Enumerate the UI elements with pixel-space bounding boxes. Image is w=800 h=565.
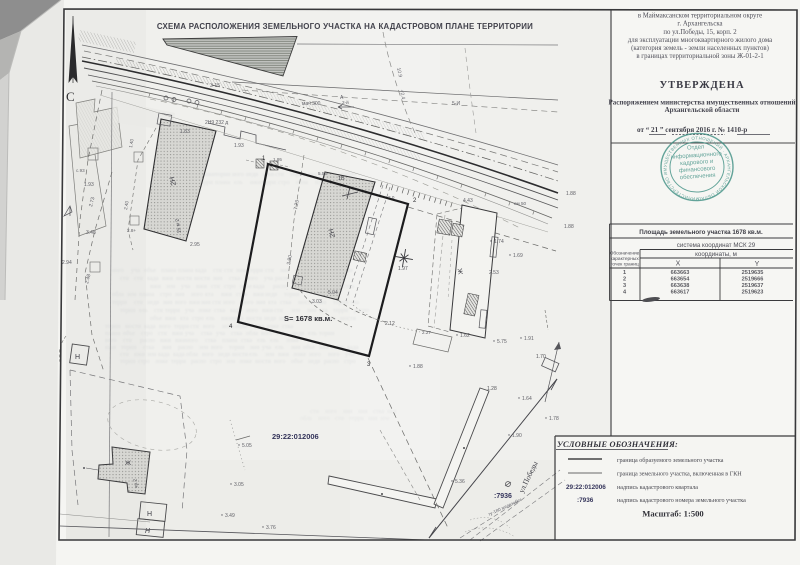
svg-text:ель: ель: [270, 337, 279, 344]
svg-text:распо: распо: [273, 283, 288, 290]
svg-text:1.74: 1.74: [494, 239, 504, 245]
svg-text:ния: ния: [291, 344, 301, 351]
svg-text:в границах территориальной зон: в границах территориальной зоны Ж-01-2-1: [636, 53, 763, 60]
svg-text:Масштаб: 1:500: Масштаб: 1:500: [642, 509, 703, 519]
svg-text:ния: ния: [236, 267, 246, 274]
svg-text:плана: плана: [105, 330, 120, 337]
svg-text:5.04: 5.04: [328, 290, 338, 296]
svg-text:С: С: [66, 89, 75, 104]
svg-text:сти: сти: [134, 275, 143, 282]
svg-text:терри: терри: [333, 307, 349, 314]
svg-text:ижи: ижи: [189, 299, 201, 306]
svg-text:1.88: 1.88: [413, 364, 423, 370]
svg-text:стка: стка: [241, 337, 252, 344]
svg-text:2.8+: 2.8+: [127, 228, 136, 233]
svg-text:3-15: 3-15: [210, 83, 220, 89]
svg-text:терри: терри: [171, 358, 187, 365]
svg-text:стка: стка: [373, 408, 384, 415]
svg-text:зем: зем: [380, 415, 389, 422]
svg-text:3: 3: [623, 283, 626, 289]
svg-text:мости: мости: [176, 275, 193, 282]
svg-text:уча: уча: [131, 267, 140, 274]
svg-text:мости: мости: [125, 323, 142, 330]
svg-text:5.55: 5.55: [318, 171, 327, 176]
svg-text:с.93: с.93: [76, 168, 85, 173]
svg-text::7936: :7936: [494, 493, 512, 500]
svg-text:обла: обла: [186, 351, 198, 358]
svg-text:Ж: Ж: [125, 460, 131, 467]
svg-text:тории: тории: [120, 307, 136, 314]
svg-text:СХЕМА РАСПОЛОЖЕНИЯ ЗЕМЕЛЬНОГО: СХЕМА РАСПОЛОЖЕНИЯ ЗЕМЕЛЬНОГО УЧАСТКА НА…: [157, 22, 533, 31]
svg-text:2.95: 2.95: [190, 242, 200, 248]
svg-text:уча: уча: [262, 344, 271, 351]
svg-text:ного: ного: [318, 415, 330, 422]
svg-text:663654: 663654: [671, 277, 691, 283]
svg-text:стка: стка: [231, 330, 242, 337]
svg-text:УТВЕРЖДЕНА: УТВЕРЖДЕНА: [659, 80, 744, 91]
svg-text:стро: стро: [344, 358, 356, 365]
svg-text:сти: сти: [120, 351, 129, 358]
svg-text:надпись кадастрового номера зе: надпись кадастрового номера земельного у…: [617, 498, 746, 504]
svg-text:Обозначение: Обозначение: [610, 251, 640, 257]
svg-text:ижи: ижи: [165, 315, 177, 322]
svg-text:ния: ния: [163, 299, 173, 306]
svg-text:мости: мости: [194, 275, 211, 282]
svg-text:вого: вого: [202, 351, 213, 358]
svg-text:Y: Y: [755, 261, 760, 268]
svg-text:ного: ного: [191, 291, 203, 298]
svg-text:стка: стка: [201, 330, 212, 337]
svg-text:распо: распо: [324, 358, 339, 365]
svg-text:4.43: 4.43: [463, 198, 473, 204]
svg-text:плана: плана: [139, 291, 154, 298]
svg-text:терри: терри: [349, 415, 365, 422]
svg-text:ния: ния: [250, 344, 260, 351]
svg-text:сти: сти: [310, 408, 319, 415]
svg-text:объе: объе: [144, 267, 156, 274]
svg-text:3.76: 3.76: [266, 525, 276, 531]
svg-text:в Маймаксанском территориально: в Маймаксанском территориальном округе: [638, 13, 762, 20]
svg-text:ель: ель: [249, 351, 258, 358]
svg-text:стка: стка: [143, 344, 154, 351]
svg-text:терри: терри: [112, 299, 128, 306]
svg-text:ного: ного: [246, 307, 258, 314]
svg-text:уча: уча: [264, 275, 273, 282]
svg-text:сти: сти: [275, 171, 284, 178]
svg-text:координаты, м: координаты, м: [695, 251, 737, 258]
svg-text:недв: недв: [264, 315, 276, 322]
svg-text:ем 50: ем 50: [514, 201, 527, 206]
svg-text:плана: плана: [222, 337, 237, 344]
svg-text:тории: тории: [105, 323, 121, 330]
svg-text:зем: зем: [291, 307, 300, 314]
svg-text:г. Архангельска: г. Архангельска: [677, 21, 722, 28]
svg-text:сти: сти: [158, 330, 167, 337]
svg-text:5.75: 5.75: [497, 339, 507, 345]
svg-text:зем: зем: [265, 351, 274, 358]
svg-text:обла: обла: [112, 291, 124, 298]
svg-text:тории: тории: [333, 299, 349, 306]
svg-text:стро: стро: [278, 179, 290, 186]
svg-text:2519637: 2519637: [742, 283, 764, 289]
svg-text:ния: ния: [387, 408, 397, 415]
svg-text:стро: стро: [138, 358, 150, 365]
svg-text:сти: сти: [211, 283, 220, 290]
svg-text:зем: зем: [226, 358, 235, 365]
svg-text:ложе: ложе: [239, 358, 252, 365]
svg-text:тории: тории: [229, 344, 245, 351]
svg-text:ель: ель: [275, 344, 284, 351]
svg-text:ного: ного: [112, 267, 124, 274]
svg-text:ель: ель: [139, 307, 148, 314]
svg-text:терри: терри: [248, 267, 264, 274]
svg-text:ижи: ижи: [250, 179, 262, 186]
svg-text:вого: вого: [159, 323, 170, 330]
svg-text:3.05: 3.05: [234, 482, 244, 488]
svg-text:Ж: Ж: [457, 268, 465, 275]
svg-text:ель: ель: [257, 337, 266, 344]
svg-text:недв: недв: [218, 351, 230, 358]
svg-text:распо: распо: [140, 337, 155, 344]
svg-text:недв: недв: [308, 358, 320, 365]
svg-text:2.94: 2.94: [62, 260, 72, 266]
svg-text:кта: кта: [180, 315, 189, 322]
svg-text:вого: вого: [175, 299, 186, 306]
svg-text:Архангельской области: Архангельской области: [665, 106, 740, 114]
svg-text:2519623: 2519623: [742, 290, 764, 296]
svg-text:стро: стро: [160, 291, 172, 298]
svg-text:ижи: ижи: [160, 337, 172, 344]
svg-text:2.27: 2.27: [422, 330, 431, 335]
svg-text:1.91: 1.91: [524, 336, 534, 342]
svg-text:обла: обла: [300, 415, 312, 422]
svg-text:ижи: ижи: [204, 171, 216, 178]
svg-text:сти: сти: [265, 267, 274, 274]
svg-text:зем: зем: [199, 344, 208, 351]
svg-text:1.62: 1.62: [460, 333, 470, 339]
svg-text:1.28: 1.28: [487, 386, 497, 392]
svg-text:тории: тории: [215, 171, 231, 178]
svg-text:када: када: [147, 275, 159, 282]
svg-text:терри: терри: [174, 323, 190, 330]
svg-text:1.78: 1.78: [549, 416, 559, 422]
svg-text:вого: вого: [203, 323, 214, 330]
svg-text:3.03: 3.03: [312, 299, 322, 305]
svg-text:1.90: 1.90: [512, 433, 522, 439]
svg-text:ижи: ижи: [105, 344, 117, 351]
svg-text:распо: распо: [354, 307, 369, 314]
svg-text:вого: вого: [328, 351, 339, 358]
svg-text:тории: тории: [284, 291, 300, 298]
svg-text::7936: :7936: [577, 497, 594, 504]
svg-text:система координат МСК 29: система координат МСК 29: [677, 242, 756, 249]
svg-text:ижи: ижи: [134, 351, 146, 358]
svg-text:объе: объе: [303, 344, 315, 351]
svg-text:сти: сти: [134, 299, 143, 306]
svg-text:ижи: ижи: [196, 283, 208, 290]
svg-text:ния: ния: [358, 408, 368, 415]
svg-text:ния: ния: [256, 299, 266, 306]
svg-text:1.83: 1.83: [180, 129, 190, 135]
svg-text:сти: сти: [190, 323, 199, 330]
svg-text:плана: плана: [161, 267, 176, 274]
svg-text:граница образуемого земельного: граница образуемого земельного участка: [617, 457, 724, 464]
svg-text:плана: плана: [215, 179, 230, 186]
svg-text:1.97: 1.97: [398, 266, 408, 272]
svg-text:када: када: [144, 323, 156, 330]
svg-text:1.69: 1.69: [513, 253, 523, 259]
svg-text:X: X: [676, 261, 681, 268]
svg-text:тории: тории: [120, 358, 136, 365]
svg-text:обла: обла: [296, 179, 308, 186]
svg-text:надпись кадастрового квартала: надпись кадастрового квартала: [617, 485, 698, 491]
svg-text:ижи: ижи: [278, 351, 290, 358]
svg-text:сти: сти: [212, 299, 221, 306]
svg-text:вого: вого: [105, 337, 116, 344]
svg-text:ижи: ижи: [150, 283, 162, 290]
svg-text:вого: вого: [274, 358, 285, 365]
svg-text:ного: ного: [309, 351, 321, 358]
svg-text:ложе: ложе: [198, 307, 211, 314]
svg-text:Площадь земельного участка 16: Площадь земельного участка 1678 кв.м.: [639, 229, 763, 236]
svg-text:ижи: ижи: [162, 275, 174, 282]
svg-text:S= 1678 кв.м.: S= 1678 кв.м.: [284, 314, 332, 323]
svg-text:стка: стка: [214, 307, 225, 314]
svg-text:ижи: ижи: [172, 330, 184, 337]
svg-text:характерных: характерных: [610, 257, 639, 262]
svg-text:распо: распо: [275, 275, 290, 282]
svg-text:ния: ния: [201, 299, 211, 306]
svg-text:мости: мости: [340, 315, 357, 322]
svg-text:ижи: ижи: [253, 291, 265, 298]
svg-text:ель: ель: [308, 330, 317, 337]
svg-text:зем: зем: [147, 351, 156, 358]
svg-text:сти: сти: [335, 415, 344, 422]
svg-text:сти: сти: [120, 275, 129, 282]
svg-text:ния: ния: [280, 267, 290, 274]
svg-text:плана: плана: [178, 267, 193, 274]
svg-text:вого: вого: [242, 299, 253, 306]
svg-text:мач 300: мач 300: [302, 101, 321, 107]
svg-text:мости: мости: [255, 358, 272, 365]
svg-text:3.49: 3.49: [225, 513, 235, 519]
svg-text:2.12: 2.12: [385, 321, 395, 327]
svg-text:сти: сти: [154, 307, 163, 314]
svg-text:ель: ель: [206, 315, 215, 322]
svg-text:зем: зем: [166, 283, 175, 290]
svg-text:сти: сти: [123, 337, 132, 344]
svg-text:ния: ния: [368, 415, 378, 422]
svg-text:ного: ного: [325, 408, 337, 415]
svg-text:29:22:012006: 29:22:012006: [272, 432, 319, 441]
svg-text:распо: распо: [191, 358, 206, 365]
svg-text:ния: ния: [213, 275, 223, 282]
svg-text:стро: стро: [141, 330, 153, 337]
svg-text:(категория земель - земли насе: (категория земель - земли населенных пун…: [631, 45, 769, 52]
svg-text:мости: мости: [232, 351, 249, 358]
svg-text:стка: стка: [282, 323, 293, 330]
svg-text:недв: недв: [246, 171, 258, 178]
svg-text:1.64: 1.64: [522, 396, 532, 402]
svg-text:1: 1: [623, 270, 626, 276]
svg-text:уча: уча: [185, 330, 194, 337]
svg-text:вого: вого: [211, 344, 222, 351]
svg-text:ния: ния: [307, 307, 317, 314]
svg-text:2519666: 2519666: [742, 277, 764, 283]
svg-text:объе: объе: [150, 315, 162, 322]
svg-text:ижи: ижи: [262, 307, 274, 314]
svg-text:663638: 663638: [671, 283, 690, 289]
svg-text:2: 2: [623, 277, 626, 283]
svg-text:5.36: 5.36: [455, 479, 465, 485]
svg-text:Н: Н: [75, 354, 80, 361]
svg-text:объе: объе: [123, 330, 135, 337]
svg-text:1.88: 1.88: [564, 224, 574, 230]
svg-text:по ул.Победы, 15, корп. 2: по ул.Победы, 15, корп. 2: [663, 29, 737, 36]
svg-text:2519635: 2519635: [742, 270, 764, 276]
svg-text:тории: тории: [121, 344, 137, 351]
svg-text:1.93: 1.93: [84, 182, 94, 188]
svg-text:стро: стро: [224, 283, 236, 290]
svg-text:ния: ния: [162, 344, 172, 351]
svg-text:1.93: 1.93: [234, 143, 244, 149]
svg-text:стка: стка: [343, 283, 354, 290]
svg-text:кта: кта: [319, 307, 328, 314]
svg-text:ного: ного: [186, 337, 198, 344]
svg-text:точек границ: точек границ: [610, 263, 639, 268]
svg-text:1Б: 1Б: [338, 176, 345, 182]
svg-text:мости: мости: [246, 315, 263, 322]
svg-text:29:22:012006: 29:22:012006: [566, 484, 606, 491]
svg-text:када: када: [253, 283, 265, 290]
svg-text:када: када: [173, 351, 185, 358]
svg-text:сти: сти: [224, 267, 233, 274]
svg-text:граница земельного участка, вк: граница земельного участка, включенная в…: [617, 472, 742, 478]
svg-text:ложе: ложе: [293, 351, 306, 358]
svg-text:1.70: 1.70: [536, 354, 546, 360]
svg-text:2.53: 2.53: [489, 270, 499, 276]
svg-text:5.05: 5.05: [242, 443, 252, 449]
svg-text:сти: сти: [274, 307, 283, 314]
svg-text:ель: ель: [234, 179, 243, 186]
svg-text:уча: уча: [185, 307, 194, 314]
svg-text:от “ 21 ” сентября 2016 г: от “ 21 ” сентября 2016 г. № 1410-р: [637, 126, 747, 134]
svg-text:недв: недв: [147, 299, 159, 306]
svg-text:663617: 663617: [671, 290, 690, 296]
svg-text:2Н9 232 д: 2Н9 232 д: [205, 120, 228, 126]
svg-text:стка: стка: [280, 299, 291, 306]
svg-text:уча: уча: [216, 330, 225, 337]
svg-text:када: када: [195, 267, 207, 274]
svg-text:ния: ния: [175, 291, 185, 298]
svg-text:ния: ния: [343, 408, 353, 415]
svg-text:обла: обла: [246, 330, 258, 337]
svg-text:ного: ного: [232, 171, 244, 178]
svg-text:Н: Н: [147, 511, 152, 518]
svg-text:стро: стро: [210, 358, 222, 365]
svg-text:недв: недв: [265, 291, 277, 298]
svg-text:УСЛОВНЫЕ ОБОЗНАЧЕНИЯ:: УСЛОВНЫЕ ОБОЗНАЧЕНИЯ:: [557, 440, 678, 449]
svg-text:Отдел: Отдел: [687, 144, 705, 151]
svg-text:ложе: ложе: [155, 358, 168, 365]
svg-text:стро: стро: [192, 315, 204, 322]
svg-text:ного: ного: [223, 299, 235, 306]
svg-text:3.48: 3.48: [86, 230, 96, 236]
svg-text:ижи: ижи: [221, 291, 233, 298]
svg-text:уча: уча: [181, 283, 190, 290]
svg-text:ижи: ижи: [175, 337, 187, 344]
svg-text:зем: зем: [127, 291, 136, 298]
svg-text:стка: стка: [229, 275, 240, 282]
svg-text:терри: терри: [165, 307, 181, 314]
svg-text:для эксплуатации многоквартирн: для эксплуатации многоквартирного жилого…: [628, 37, 772, 44]
svg-text:када: када: [158, 351, 170, 358]
svg-text:663663: 663663: [671, 270, 690, 276]
svg-text:уча: уча: [350, 299, 359, 306]
svg-text:объе: объе: [291, 358, 303, 365]
svg-text:1.88: 1.88: [566, 191, 576, 197]
svg-text:распо: распо: [178, 344, 193, 351]
svg-text:сти: сти: [213, 267, 222, 274]
svg-text:5-И: 5-И: [452, 101, 460, 107]
svg-text:кта: кта: [205, 291, 214, 298]
svg-text:1.95: 1.95: [273, 157, 282, 162]
svg-text:стка: стка: [205, 337, 216, 344]
svg-text:кта: кта: [268, 299, 277, 306]
svg-text:ижи: ижи: [221, 315, 233, 322]
svg-text:тории: тории: [319, 330, 335, 337]
